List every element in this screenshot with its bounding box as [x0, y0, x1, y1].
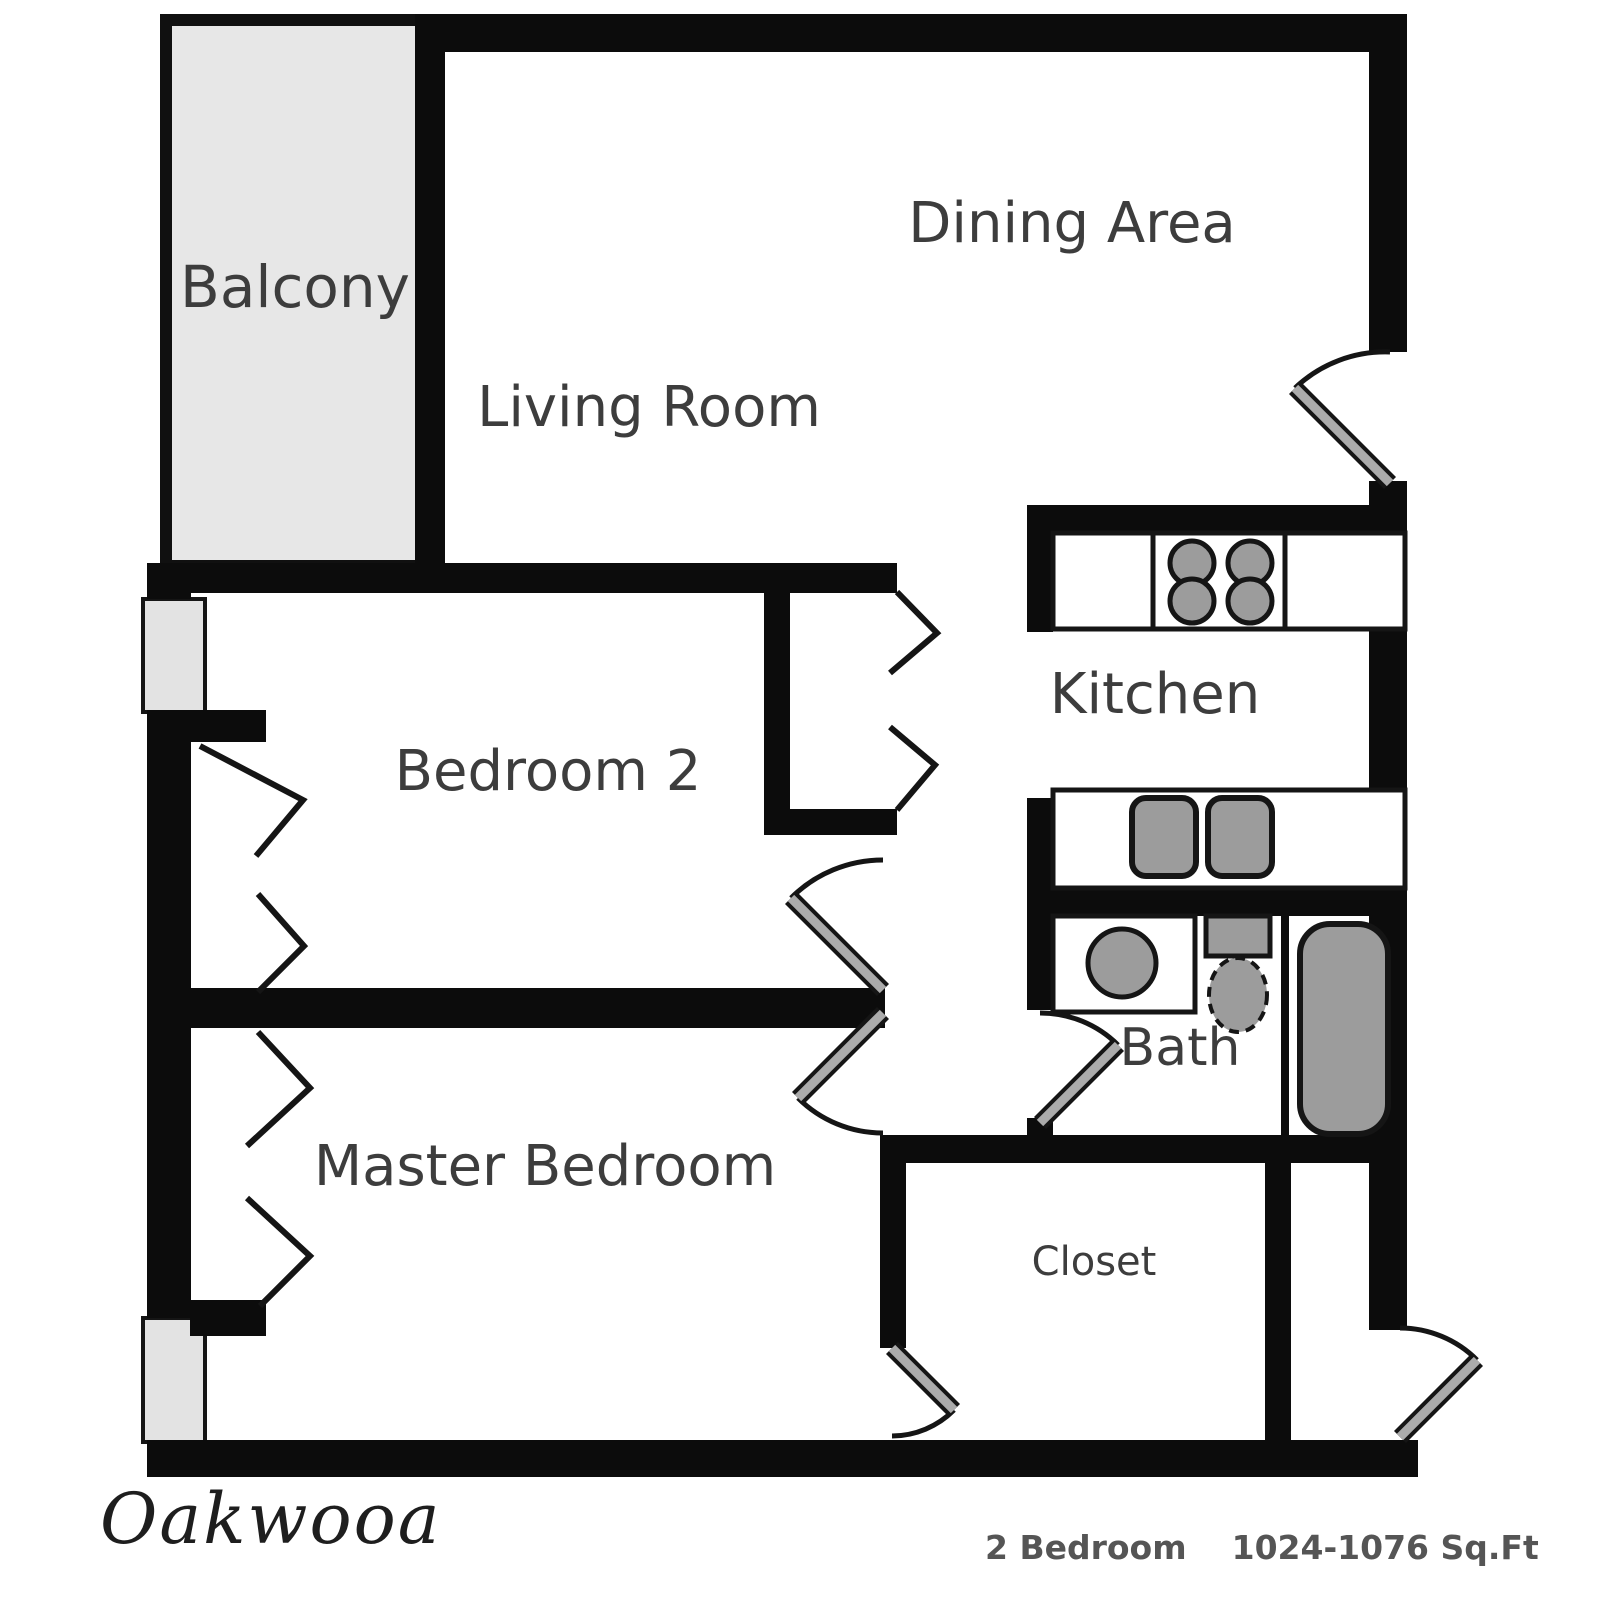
wall — [880, 1135, 1407, 1163]
door-arc — [1040, 1013, 1118, 1045]
wall — [190, 988, 885, 1028]
wall — [147, 1440, 1418, 1477]
window-icon — [143, 599, 205, 712]
door-leaf — [1295, 388, 1390, 483]
wall — [190, 1300, 266, 1336]
window-icon — [143, 1318, 205, 1442]
door-arc — [892, 1410, 954, 1436]
wall — [1027, 888, 1407, 916]
vanity-sink-icon — [1053, 916, 1195, 1012]
floor-plan: Balcony Dining Area Living Room Bedroom … — [0, 0, 1600, 1600]
door-swing-closet — [892, 1348, 954, 1436]
room-label-bedroom2: Bedroom 2 — [395, 744, 702, 800]
wall — [1369, 14, 1407, 352]
door-swing-master-bedroom — [798, 1013, 883, 1133]
wall — [1265, 1163, 1291, 1440]
toilet-icon — [1206, 916, 1270, 1032]
room-label-balcony: Balcony — [180, 258, 410, 316]
door-leaf — [1400, 1360, 1477, 1437]
wall — [880, 1163, 906, 1348]
bifold-door-icon — [247, 1032, 310, 1146]
wall — [430, 14, 1407, 52]
bifold-door-icon — [200, 746, 303, 856]
floor-plan-canvas — [0, 0, 1600, 1600]
room-label-dining: Dining Area — [908, 196, 1235, 252]
bathtub-icon — [1300, 924, 1388, 1134]
door-leaf — [1040, 1045, 1118, 1123]
room-label-kitchen: Kitchen — [1050, 667, 1260, 723]
door-leaf — [892, 1348, 954, 1410]
wall — [415, 14, 445, 592]
door-arc — [1295, 352, 1390, 388]
unit-type: 2 Bedroom — [985, 1528, 1187, 1567]
room-label-bath: Bath — [1120, 1022, 1241, 1074]
wall — [1027, 505, 1407, 533]
bifold-door-icon — [247, 1198, 310, 1306]
wall — [190, 710, 266, 742]
wall — [147, 710, 191, 1318]
door-arc — [791, 860, 883, 898]
door-swing-bath — [1040, 1013, 1118, 1123]
door-swing-dining — [1295, 352, 1390, 483]
wall — [1281, 916, 1289, 1135]
room-label-closet: Closet — [1032, 1242, 1157, 1282]
room-label-living: Living Room — [477, 380, 821, 436]
wall — [1027, 505, 1053, 632]
door-arc — [1400, 1328, 1477, 1360]
wall — [764, 809, 897, 835]
stove-icon — [1153, 533, 1285, 629]
plan-summary: 2 Bedroom 1024-1076 Sq.Ft — [985, 1528, 1539, 1567]
door-leaf — [791, 898, 883, 990]
room-label-master: Master Bedroom — [314, 1139, 776, 1195]
bifold-door-icon — [890, 727, 935, 810]
wall — [764, 592, 790, 835]
door-swing-bedroom2 — [791, 860, 883, 990]
bifold-door-icon — [890, 592, 937, 673]
wall — [147, 563, 897, 593]
brand-logo: Oakwooa — [100, 1478, 441, 1560]
door-swing-entry — [1400, 1328, 1477, 1437]
unit-area: 1024-1076 Sq.Ft — [1232, 1528, 1539, 1567]
door-arc — [798, 1098, 883, 1133]
bifold-door-icon — [258, 894, 304, 992]
